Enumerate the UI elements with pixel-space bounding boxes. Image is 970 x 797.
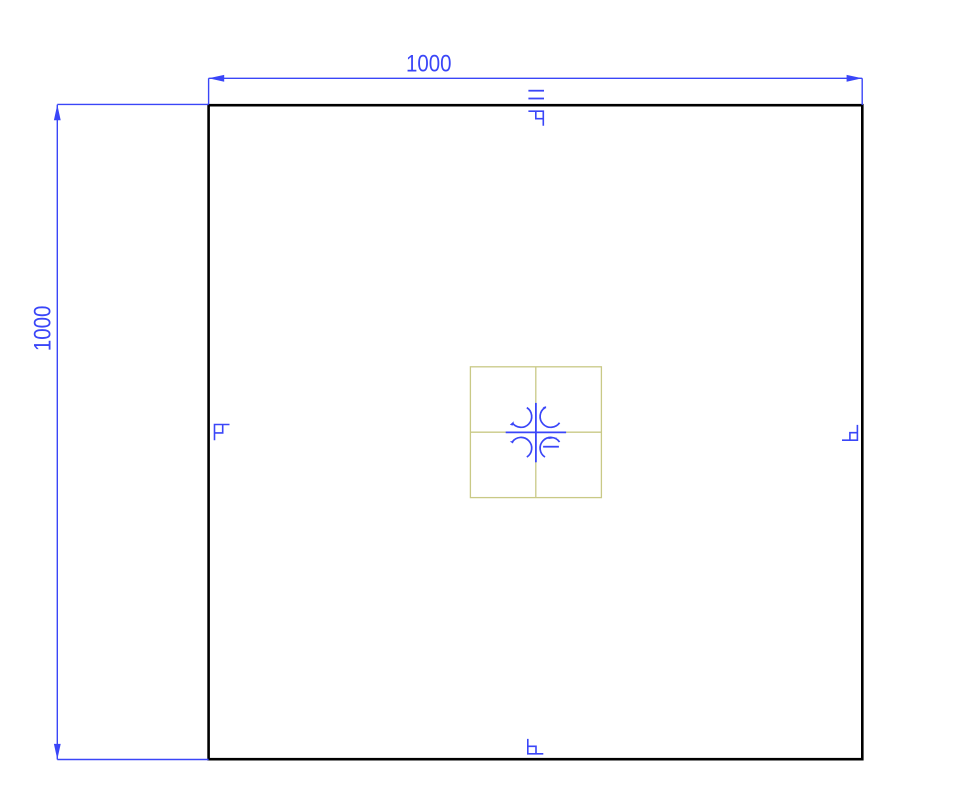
svg-text:1000: 1000 bbox=[406, 51, 452, 78]
svg-text:1000: 1000 bbox=[30, 306, 57, 352]
